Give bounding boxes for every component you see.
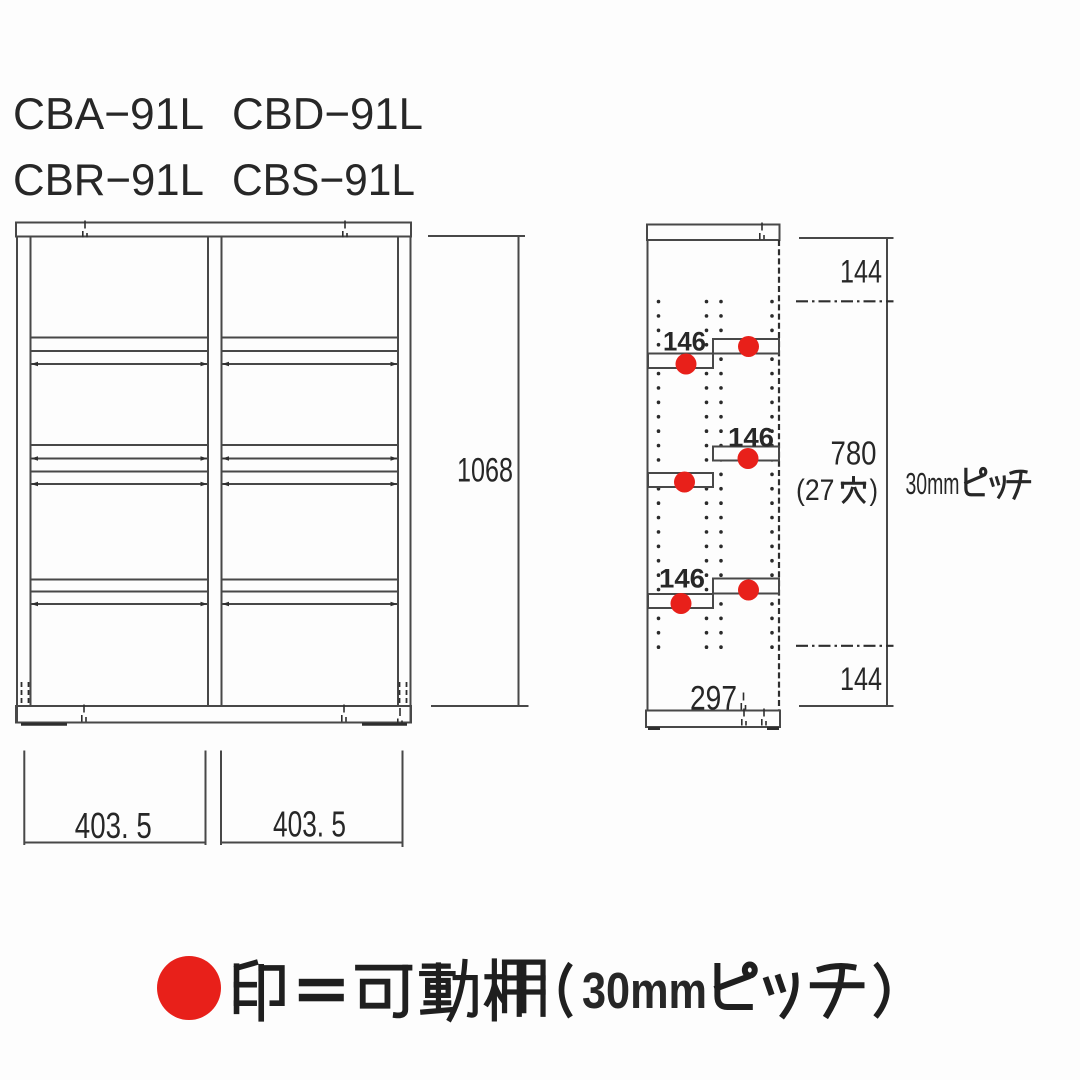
svg-text:): ) [870, 474, 879, 507]
svg-text:CBA−91L: CBA−91L [13, 90, 204, 139]
svg-text:CBS−91L: CBS−91L [232, 156, 415, 205]
svg-text:30mm: 30mm [582, 962, 707, 1019]
svg-text:146: 146 [728, 423, 774, 453]
svg-text:(27: (27 [796, 474, 835, 507]
svg-text:CBD−91L: CBD−91L [232, 90, 423, 139]
svg-text:780: 780 [831, 435, 877, 472]
svg-text:146: 146 [663, 327, 706, 357]
svg-text:144: 144 [840, 254, 882, 290]
svg-text:1068: 1068 [457, 452, 513, 490]
svg-text:146: 146 [659, 564, 705, 594]
svg-text:403. 5: 403. 5 [75, 805, 152, 846]
svg-text:30mm: 30mm [906, 466, 960, 501]
svg-text:144: 144 [840, 661, 882, 697]
svg-text:403. 5: 403. 5 [273, 804, 346, 845]
svg-text:297: 297 [690, 680, 737, 718]
svg-text:CBR−91L: CBR−91L [13, 156, 204, 205]
